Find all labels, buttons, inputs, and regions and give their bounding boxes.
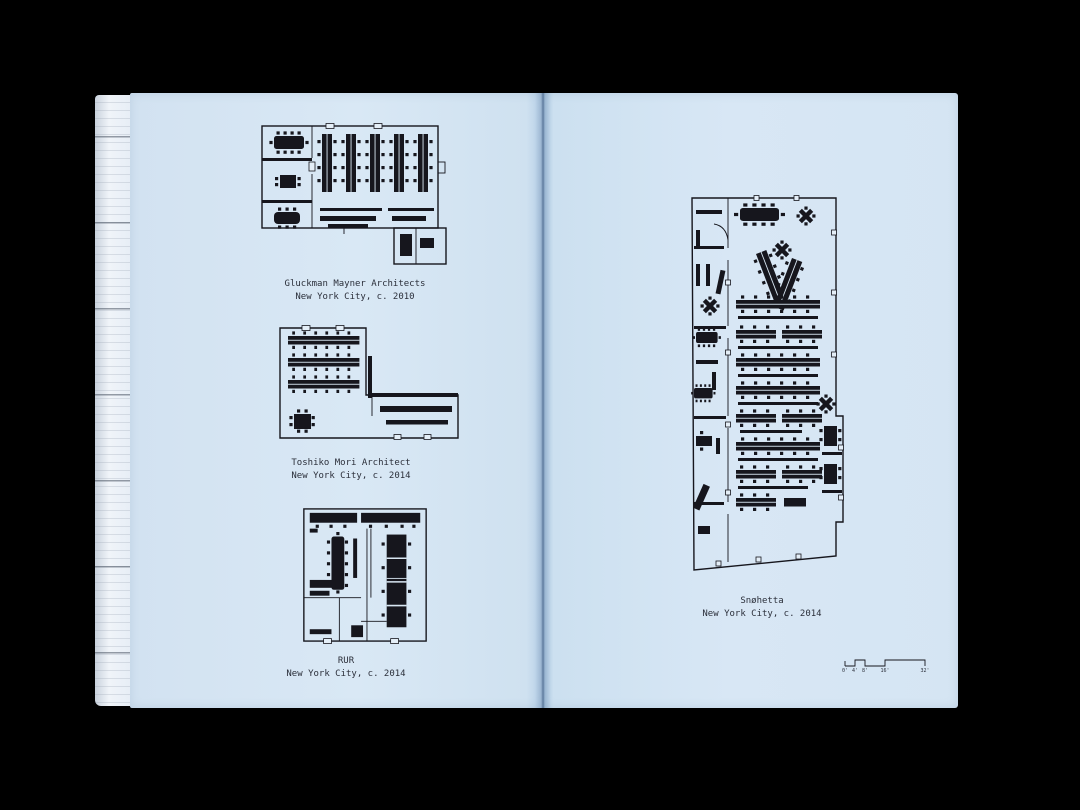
open-book: Gluckman Mayner Architects New York City… (95, 93, 963, 708)
scale-label: 16' (880, 668, 889, 673)
architect-name: Toshiko Mori Architect (231, 457, 471, 470)
photo-background: Gluckman Mayner Architects New York City… (0, 0, 1080, 810)
floor-plan-rur (295, 503, 435, 646)
scale-label: 4' (852, 668, 858, 673)
architect-name: RUR (226, 655, 466, 668)
plan-location: New York City, c. 2014 (231, 470, 471, 483)
plan-caption-rur: RUR New York City, c. 2014 (226, 655, 466, 681)
floor-plan-gluckman-mayner (248, 116, 460, 270)
architect-name: Snøhetta (642, 595, 882, 608)
architect-name: Gluckman Mayner Architects (235, 278, 475, 291)
floor-plan-toshiko-mori (268, 320, 462, 446)
plan-location: New York City, c. 2014 (642, 608, 882, 621)
plan-location: New York City, c. 2014 (226, 668, 466, 681)
plan-caption-toshiko-mori: Toshiko Mori Architect New York City, c.… (231, 457, 471, 483)
scale-label: 0' (842, 668, 848, 673)
right-page: Snøhetta New York City, c. 2014 0' 4' 8'… (543, 93, 958, 708)
scale-label: 32' (920, 668, 929, 673)
plan-caption-snohetta: Snøhetta New York City, c. 2014 (642, 595, 882, 621)
scale-bar: 0' 4' 8' 16' 32' (841, 651, 933, 673)
scale-label: 8' (862, 668, 868, 673)
floor-plan-snohetta (680, 190, 850, 586)
plan-location: New York City, c. 2010 (235, 291, 475, 304)
book-fore-edge (95, 95, 131, 706)
plan-caption-gluckman-mayner: Gluckman Mayner Architects New York City… (235, 278, 475, 304)
left-page: Gluckman Mayner Architects New York City… (130, 93, 543, 708)
